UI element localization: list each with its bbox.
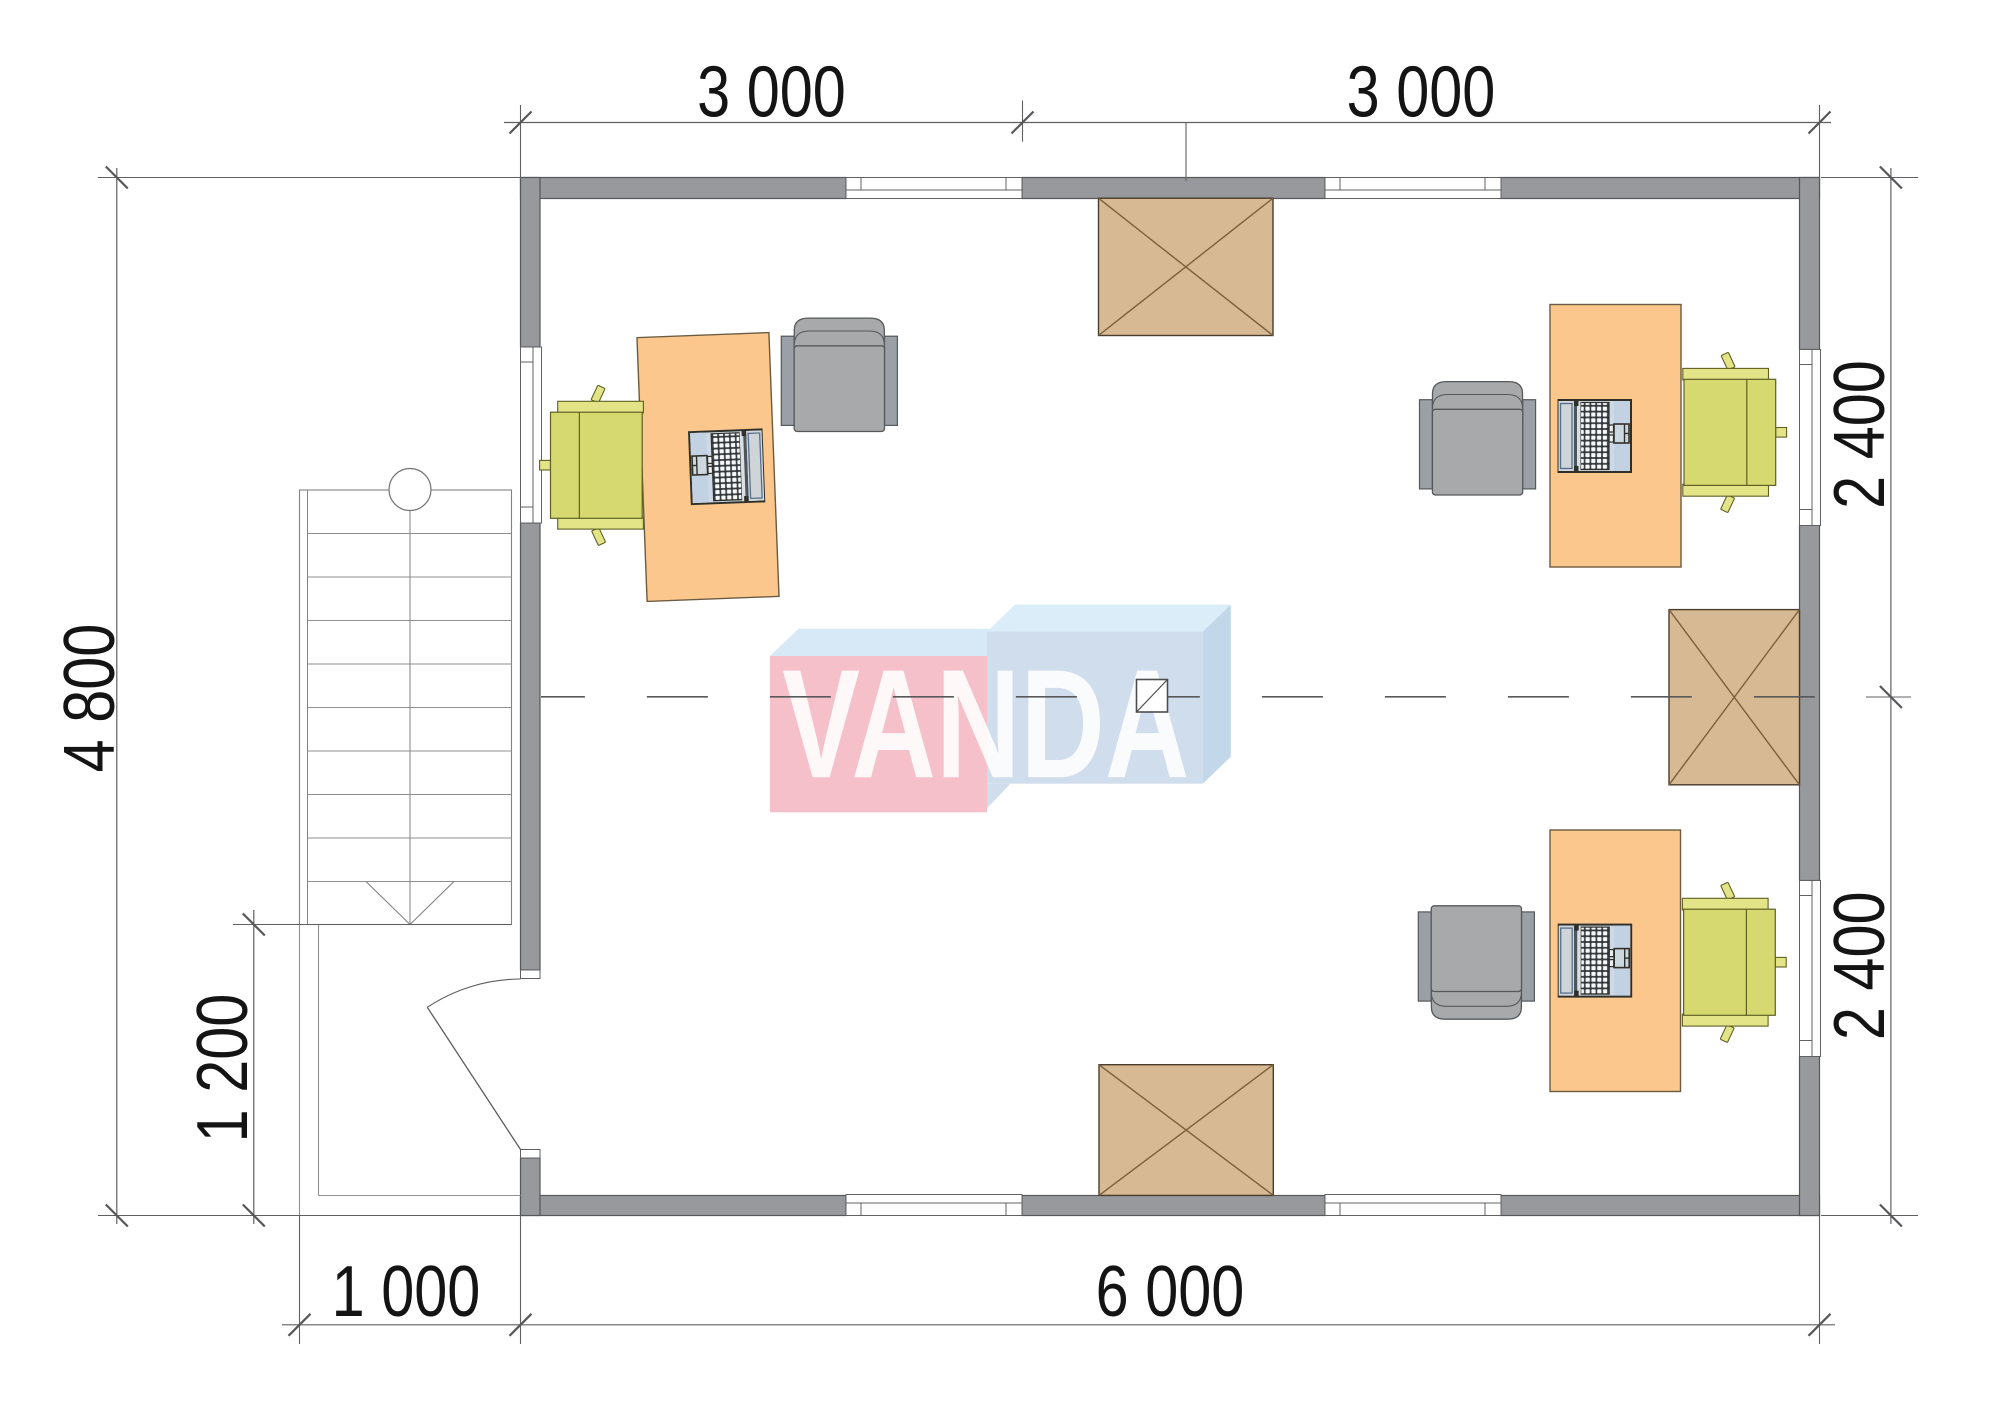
svg-text:1 200: 1 200 xyxy=(182,994,263,1143)
svg-text:3 000: 3 000 xyxy=(697,51,846,132)
svg-text:VANDA: VANDA xyxy=(782,638,1189,811)
svg-text:1 000: 1 000 xyxy=(332,1251,481,1332)
svg-text:2 400: 2 400 xyxy=(1819,891,1900,1040)
svg-text:4 800: 4 800 xyxy=(49,624,130,773)
svg-text:3 000: 3 000 xyxy=(1347,51,1496,132)
svg-text:6 000: 6 000 xyxy=(1096,1251,1245,1332)
svg-text:2 400: 2 400 xyxy=(1819,360,1900,509)
